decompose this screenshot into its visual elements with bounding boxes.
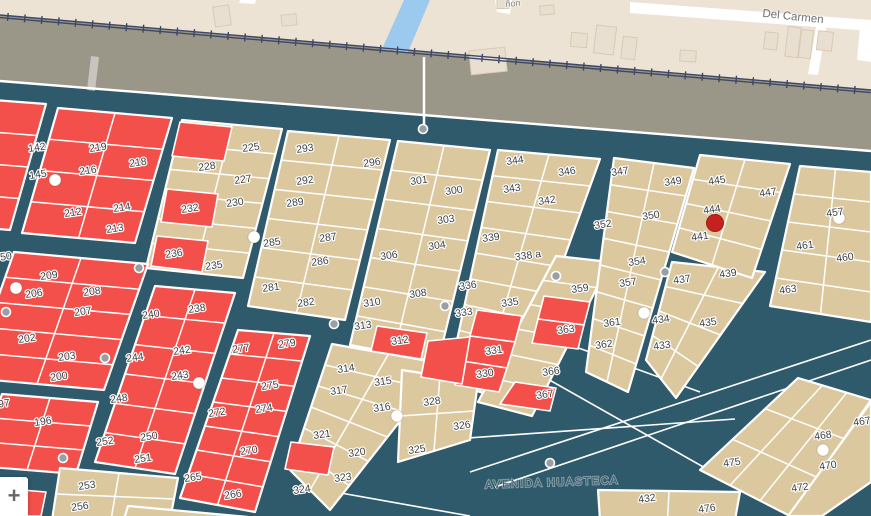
railway-tick <box>41 16 42 24</box>
building-footprint <box>540 5 555 15</box>
lot-number-label: 349 <box>663 175 682 189</box>
lot-number-label: 227 <box>233 173 252 187</box>
lot-number-label: 296 <box>362 156 381 170</box>
lot-number-label: 253 <box>77 479 96 493</box>
street-node-white <box>10 282 22 294</box>
lot-number-label: 50 <box>0 250 13 264</box>
street-node-gray <box>135 264 144 273</box>
railway-tick <box>346 42 347 50</box>
railway-tick <box>651 68 652 76</box>
lot-number-label: 333 <box>454 306 473 320</box>
railway-tick <box>804 82 805 90</box>
lot-number-label: 461 <box>795 239 814 253</box>
street-node-gray <box>2 308 11 317</box>
railway-tick <box>566 61 567 69</box>
lot-number-label: 235 <box>204 259 223 273</box>
lot-number-label: 460 <box>835 251 854 265</box>
building-footprint <box>570 32 587 47</box>
railway-tick <box>634 67 635 75</box>
lot-number-label: 444 <box>702 203 721 217</box>
lot-number-label: 303 <box>436 213 455 227</box>
railway-tick <box>837 84 838 92</box>
lot-number-label: 342 <box>537 194 556 208</box>
lot-number-label: 347 <box>610 165 629 179</box>
railway-tick <box>363 44 364 52</box>
railway-tick <box>380 45 381 53</box>
lot-number-label: 306 <box>379 249 398 263</box>
lot-number-label: 251 <box>133 452 152 466</box>
lot-number-label: 256 <box>70 500 89 514</box>
highlighted-parcel[interactable] <box>172 122 232 161</box>
building-footprint <box>621 36 638 60</box>
lot-number-label: 314 <box>336 362 355 376</box>
lot-number-label: 346 <box>557 165 576 179</box>
street-node-gray <box>101 354 110 363</box>
lot-number-label: 279 <box>277 337 296 351</box>
parcel-map: 1421452192162182122142132252282272302322… <box>0 0 871 516</box>
railway-tick <box>329 41 330 49</box>
railway-tick <box>736 76 737 84</box>
street-node-white <box>638 307 650 319</box>
railway-tick <box>194 29 195 37</box>
lot-number-label: 326 <box>452 419 471 433</box>
lot-number-label: 230 <box>225 196 244 210</box>
street-node-white <box>391 410 403 422</box>
lot-number-label: 339 <box>481 231 500 245</box>
railway-tick <box>143 25 144 33</box>
lot-number-label: 463 <box>778 283 797 297</box>
lot-number-label: 316 <box>372 401 391 415</box>
street-node-gray <box>59 454 68 463</box>
lot-number-label: 250 <box>139 430 158 444</box>
lot-number-label: 277 <box>231 342 250 356</box>
railway-tick <box>414 48 415 56</box>
railway-tick <box>177 28 178 36</box>
lot-number-label: 335 <box>500 296 519 310</box>
railway-tick <box>8 13 9 21</box>
building-footprint <box>816 31 833 52</box>
lot-number-label: 344 <box>505 154 524 168</box>
block-432 <box>598 490 740 516</box>
lot-number-label: 320 <box>347 446 366 460</box>
lot-number-label: 238 <box>187 302 206 316</box>
lot-number-label: 285 <box>262 236 281 250</box>
lot-number-label: 300 <box>444 184 463 198</box>
street-node-gray <box>441 302 450 311</box>
railway-tick <box>617 66 618 74</box>
lot-number-label: 367 <box>535 388 554 402</box>
lot-number-label: 242 <box>172 344 191 358</box>
railway-tick <box>499 55 500 63</box>
lot-number-label: 317 <box>329 384 348 398</box>
lot-number-label: 281 <box>261 281 280 295</box>
railway-tick <box>295 38 296 46</box>
zoom-control: + <box>0 477 28 516</box>
lot-number-label: 206 <box>24 287 43 301</box>
lot-number-label: 467 <box>852 415 871 429</box>
map-canvas[interactable]: 1421452192162182122142132252282272302322… <box>0 0 871 516</box>
lot-number-label: 203 <box>57 350 76 364</box>
lot-number-label: 433 <box>652 339 671 353</box>
lot-number-label: 447 <box>758 186 777 200</box>
lot-number-label: 350 <box>641 209 660 223</box>
railway-tick <box>600 64 601 72</box>
highlighted-parcel[interactable] <box>421 337 470 384</box>
railway-tick <box>312 39 313 47</box>
railway-tick <box>92 20 93 28</box>
lot-number-label: 468 <box>813 429 832 443</box>
lot-number-label: 331 <box>484 344 503 358</box>
railway-tick <box>533 58 534 66</box>
lot-number-label: 432 <box>637 492 656 506</box>
lot-number-label: 361 <box>602 316 621 330</box>
lot-number-label: 212 <box>63 206 82 220</box>
street-node-white <box>49 174 61 186</box>
railway-tick <box>160 26 161 34</box>
lot-number-label: 324 <box>292 483 311 497</box>
lot-number-label: 439 <box>718 267 737 281</box>
lot-number-label: 476 <box>697 502 716 516</box>
lot-number-label: 308 <box>408 287 427 301</box>
lot-number-label: 243 <box>170 369 189 383</box>
lot-number-label: 437 <box>672 273 691 287</box>
lot-number-label: 323 <box>333 471 352 485</box>
lot-number-label: 289 <box>285 196 304 210</box>
street-node-white <box>817 444 829 456</box>
lot-number-label: 207 <box>73 305 92 319</box>
building-footprint <box>680 50 697 62</box>
lot-number-label: 219 <box>88 141 107 155</box>
railway-tick <box>245 33 246 41</box>
railway-tick <box>770 79 771 87</box>
lot-number-label: 228 <box>197 160 216 174</box>
railway-tick <box>753 77 754 85</box>
lot-number-label: 301 <box>409 174 428 188</box>
lot-number-label: 274 <box>254 402 273 416</box>
railway-tick <box>787 80 788 88</box>
lot-number-label: 286 <box>310 255 329 269</box>
lot-number-label: 470 <box>818 459 837 473</box>
lot-number-label: 435 <box>698 316 717 330</box>
lot-number-label: 362 <box>594 338 613 352</box>
railway-tick <box>431 49 432 57</box>
lot-number-label: 315 <box>373 375 392 389</box>
railway-tick <box>262 35 263 43</box>
street-node-gray <box>330 320 339 329</box>
lot-number-label: 328 <box>422 395 441 409</box>
lot-number-label: 202 <box>17 332 36 346</box>
railway-tick <box>279 36 280 44</box>
lot-number-label: 209 <box>39 269 58 283</box>
lot-number-label: 240 <box>141 308 160 322</box>
street-node-gray <box>661 268 670 277</box>
building-footprint <box>213 5 232 27</box>
railway-tick <box>465 52 466 60</box>
street-node-white <box>248 231 260 243</box>
lot-number-label: 218 <box>128 156 147 170</box>
street-node-gray <box>552 272 561 281</box>
railway-tick <box>702 73 703 81</box>
railway-tick <box>516 57 517 65</box>
railway-tick <box>482 54 483 62</box>
lot-number-label: 304 <box>427 239 446 253</box>
railway-tick <box>58 17 59 25</box>
lot-number-label: 196 <box>33 415 52 429</box>
lot-number-label: 336 <box>458 279 477 293</box>
lot-number-label: 363 <box>556 323 575 337</box>
lot-number-label: 330 <box>475 367 494 381</box>
lot-number-label: 265 <box>183 471 202 485</box>
railway-tick <box>583 63 584 71</box>
railway-tick <box>685 71 686 79</box>
lot-number-label: 287 <box>318 231 337 245</box>
lot-number-label: 445 <box>707 174 726 188</box>
zoom-in-button[interactable]: + <box>0 485 28 507</box>
lot-number-label: 232 <box>180 202 199 216</box>
lot-number-label: 293 <box>295 142 314 156</box>
lot-number-label: 357 <box>618 276 637 290</box>
lot-number-label: 321 <box>312 428 331 442</box>
lot-number-label: 434 <box>651 313 670 327</box>
lot-number-label: 457 <box>825 206 844 220</box>
railway-tick <box>109 22 110 30</box>
lot-number-label: 475 <box>722 456 741 470</box>
lot-number-label: 270 <box>239 444 258 458</box>
lot-number-label: 214 <box>112 201 131 215</box>
lot-number-label: 252 <box>95 435 114 449</box>
partial-top-label: ñon <box>505 0 521 9</box>
railway-tick <box>668 70 669 78</box>
lot-number-label: 97 <box>0 397 11 411</box>
railway-tick <box>550 60 551 68</box>
lot-number-label: 292 <box>295 174 314 188</box>
lot-number-label: 312 <box>390 334 409 348</box>
selected-lot-marker[interactable] <box>707 215 724 232</box>
lot-number-label: 145 <box>28 168 47 182</box>
railway-tick <box>821 83 822 91</box>
lot-number-label: 472 <box>790 481 809 495</box>
lot-number-label: 213 <box>105 222 124 236</box>
lot-number-label: 266 <box>223 488 242 502</box>
lot-number-label: 225 <box>241 141 260 155</box>
lot-number-label: 282 <box>296 296 315 310</box>
lot-number-label: 366 <box>541 365 560 379</box>
lot-number-label: 248 <box>109 392 128 406</box>
lot-number-label: 208 <box>82 285 101 299</box>
lot-number-label: 142 <box>27 141 46 155</box>
railway-tick <box>228 32 229 40</box>
railway-tick <box>126 23 127 31</box>
railway-tick <box>719 74 720 82</box>
building-footprint <box>593 25 616 55</box>
building-footprint <box>281 14 297 27</box>
lot-number-label: 441 <box>690 230 709 244</box>
lot-number-label: 216 <box>78 164 97 178</box>
railway-tick <box>211 30 212 38</box>
railway-tick <box>24 14 25 22</box>
lot-number-label: 272 <box>207 406 226 420</box>
railway-tick <box>448 51 449 59</box>
street-node-gray <box>419 125 428 134</box>
lot-number-label: 236 <box>164 247 183 261</box>
lot-number-label: 352 <box>593 218 612 232</box>
lot-number-label: 244 <box>125 351 144 365</box>
lot-number-label: 343 <box>502 182 521 196</box>
lot-number-label: 359 <box>570 282 589 296</box>
railway-tick <box>397 47 398 55</box>
railway-tick <box>75 19 76 27</box>
building-footprint <box>764 32 779 50</box>
street-node-gray <box>546 459 555 468</box>
railway-tick <box>854 86 855 94</box>
lot-number-label: 200 <box>49 370 68 384</box>
lot-number-label: 354 <box>627 255 646 269</box>
street-node-white <box>193 377 205 389</box>
lot-number-label: 313 <box>353 319 372 333</box>
highlighted-parcel[interactable] <box>285 442 334 475</box>
lot-number-label: 325 <box>407 443 426 457</box>
lot-number-label: 310 <box>362 296 381 310</box>
lot-number-label: 275 <box>260 379 279 393</box>
